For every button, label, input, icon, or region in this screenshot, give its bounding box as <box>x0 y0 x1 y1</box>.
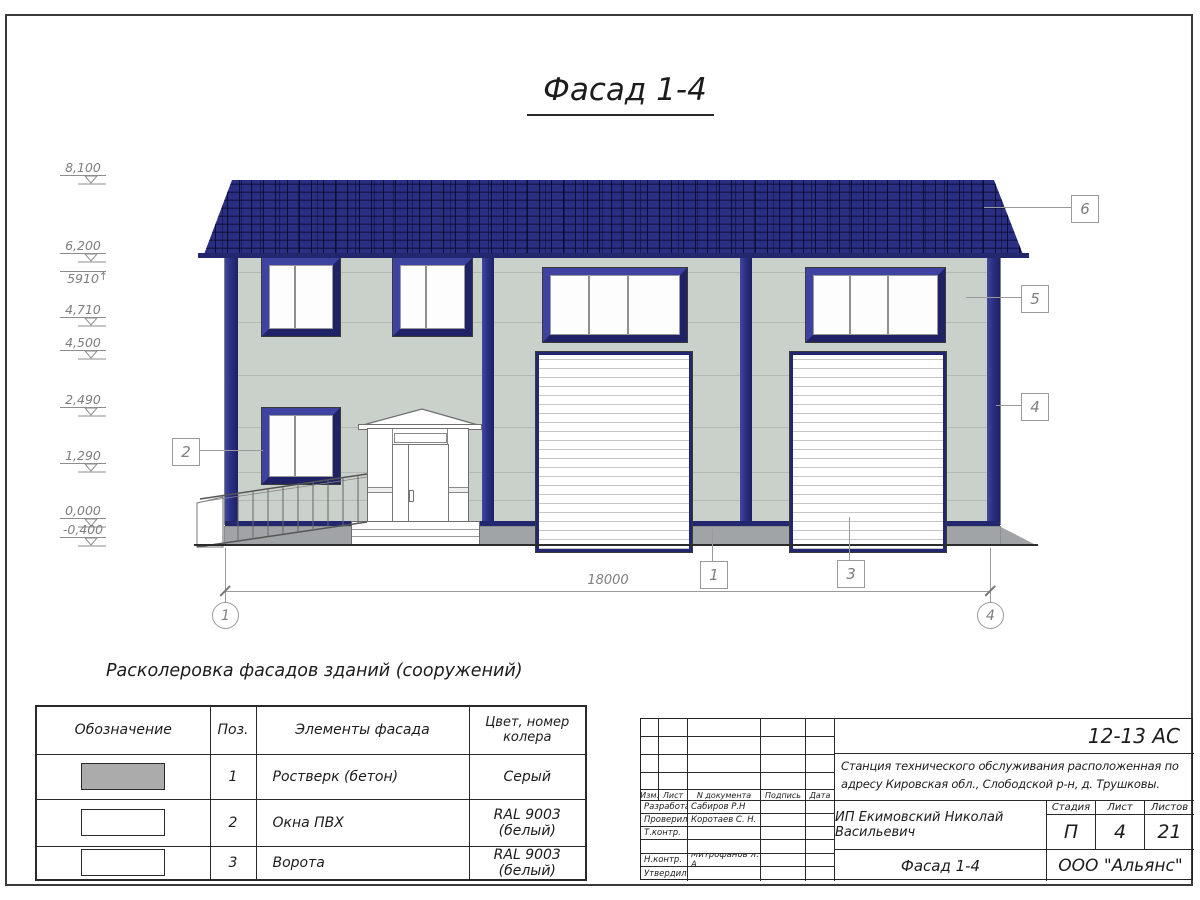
transom-window <box>394 433 447 443</box>
elevation-marker-icon <box>60 408 106 418</box>
elevation-mark: 5910 ↑ <box>60 270 106 285</box>
elevation-marker-icon <box>60 176 106 186</box>
table-row: 3 Ворота RAL 9003 (белый) <box>36 846 586 880</box>
title-underline <box>527 114 714 116</box>
window-mullion <box>294 266 296 328</box>
role-cell: Разработал <box>641 801 688 814</box>
element-cell: Окна ПВХ <box>256 799 469 846</box>
ground-line <box>194 544 1038 546</box>
sheets-total: 21 <box>1145 815 1194 850</box>
col-designation: Обозначение <box>36 706 210 754</box>
elevation-marker-icon <box>60 538 106 548</box>
sheet-label: Лист <box>1096 801 1145 815</box>
window-mullion <box>627 276 629 334</box>
roof-tiles <box>203 180 1024 257</box>
window-3pane <box>543 268 687 342</box>
window-glass <box>269 265 333 329</box>
company-name: ООО "Альянс" <box>1047 850 1194 881</box>
elevation-mark: 6,200 <box>60 239 106 264</box>
window-2pane <box>262 258 340 336</box>
pos-cell: 1 <box>210 754 256 799</box>
col-izm: Изм. <box>641 790 659 801</box>
pilaster <box>482 258 494 524</box>
door-leaf-split <box>408 445 409 521</box>
document-code: 12-13 АС <box>835 719 1194 754</box>
name-cell: Сабиров Р.Н <box>688 801 761 814</box>
access-ramp <box>190 465 375 550</box>
dimension-line <box>225 591 991 592</box>
name-cell: Коротаев С. Н. <box>688 814 761 827</box>
elevation-mark: 4,500 <box>60 336 106 361</box>
callout-gate: 3 <box>837 560 865 588</box>
elevation-mark: -0,400 <box>60 523 106 548</box>
col-element: Элементы фасада <box>256 706 469 754</box>
roof-fascia <box>198 253 1029 258</box>
page-title: Фасад 1-4 <box>505 72 745 108</box>
callout-leader <box>198 450 263 451</box>
pos-cell: 2 <box>210 799 256 846</box>
elevation-marker-icon <box>60 254 106 264</box>
stage-label: Стадия <box>1047 801 1096 815</box>
dimension-value: 18000 <box>558 573 658 588</box>
callout-leader <box>849 517 850 562</box>
role-cell: Н.контр. <box>641 854 688 867</box>
callout-plinth: 1 <box>700 561 728 589</box>
stage-value: П <box>1047 815 1096 850</box>
window-glass <box>550 275 680 335</box>
window-mullion <box>849 276 851 334</box>
callout-leader <box>966 297 1022 298</box>
color-table-title: Расколеровка фасадов зданий (сооружений) <box>106 661 523 681</box>
sheets-label: Листов <box>1145 801 1194 815</box>
callout-leader <box>712 529 713 562</box>
elevation-marker-icon <box>60 464 106 474</box>
element-cell: Ростверк (бетон) <box>256 754 469 799</box>
window-mullion <box>588 276 590 334</box>
element-cell: Ворота <box>256 846 469 880</box>
col-color: Цвет, номер колера <box>469 706 586 754</box>
color-cell: Серый <box>469 754 586 799</box>
door-handle <box>409 490 414 502</box>
color-cell: RAL 9003 (белый) <box>469 799 586 846</box>
up-arrow-icon: ↑ <box>99 271 108 283</box>
col-data: Дата <box>806 790 835 801</box>
callout-leader <box>984 207 1072 208</box>
name-cell: Митрофанов Я. А. <box>688 854 761 867</box>
project-description: Станция технического обслуживания распол… <box>835 754 1194 801</box>
callout-wall: 5 <box>1021 285 1049 313</box>
sheet-number: 4 <box>1096 815 1145 850</box>
color-cell: RAL 9003 (белый) <box>469 846 586 880</box>
role-cell <box>641 840 688 854</box>
col-list: Лист <box>659 790 688 801</box>
swatch-white <box>81 849 165 876</box>
elevation-mark: 2,490 <box>60 393 106 418</box>
color-schedule-table: Обозначение Поз. Элементы фасада Цвет, н… <box>35 705 587 881</box>
col-pos: Поз. <box>210 706 256 754</box>
title-block: Изм. Лист N документа Подпись Дата Разра… <box>640 718 1193 880</box>
callout-pilaster: 4 <box>1021 393 1049 421</box>
elevation-mark: 4,710 <box>60 303 106 328</box>
callout-window: 2 <box>172 438 200 466</box>
roller-gate <box>536 352 692 552</box>
pos-cell: 3 <box>210 846 256 880</box>
roller-gate <box>790 352 946 552</box>
swatch-white <box>81 809 165 836</box>
window-3pane <box>806 268 945 342</box>
window-mullion <box>425 266 427 328</box>
entrance-door <box>392 444 449 522</box>
callout-roof: 6 <box>1071 195 1099 223</box>
extension-line <box>225 548 226 603</box>
entrance-porch <box>368 429 468 522</box>
drawing-sheet: Фасад 1-4 8,100 6,200 5910 ↑ 4,710 4,500… <box>0 0 1200 900</box>
extension-line <box>990 548 991 603</box>
swatch-gray <box>81 763 165 790</box>
window-2pane <box>393 258 472 336</box>
window-glass <box>400 265 465 329</box>
col-podpis: Подпись <box>761 790 806 801</box>
table-row: 2 Окна ПВХ RAL 9003 (белый) <box>36 799 586 846</box>
pilaster <box>740 258 752 524</box>
elevation-mark: 8,100 <box>60 161 106 186</box>
elevation-marker-icon <box>60 318 106 328</box>
axis-bubble-1: 1 <box>212 602 239 629</box>
axis-bubble-4: 4 <box>977 602 1004 629</box>
window-glass <box>813 275 938 335</box>
role-cell: Проверил <box>641 814 688 827</box>
col-ndoc: N документа <box>688 790 761 801</box>
client-name: ИП Екимовский Николай Васильевич <box>835 801 1047 850</box>
elevation-marker-icon <box>60 351 106 361</box>
table-header-row: Обозначение Поз. Элементы фасада Цвет, н… <box>36 706 586 754</box>
callout-leader <box>996 405 1022 406</box>
role-cell: Т.контр. <box>641 827 688 840</box>
window-mullion <box>887 276 889 334</box>
table-row: 1 Ростверк (бетон) Серый <box>36 754 586 799</box>
elevation-mark: 1,290 <box>60 449 106 474</box>
role-cell: Утвердил <box>641 867 688 881</box>
sheet-title: Фасад 1-4 <box>835 850 1047 881</box>
